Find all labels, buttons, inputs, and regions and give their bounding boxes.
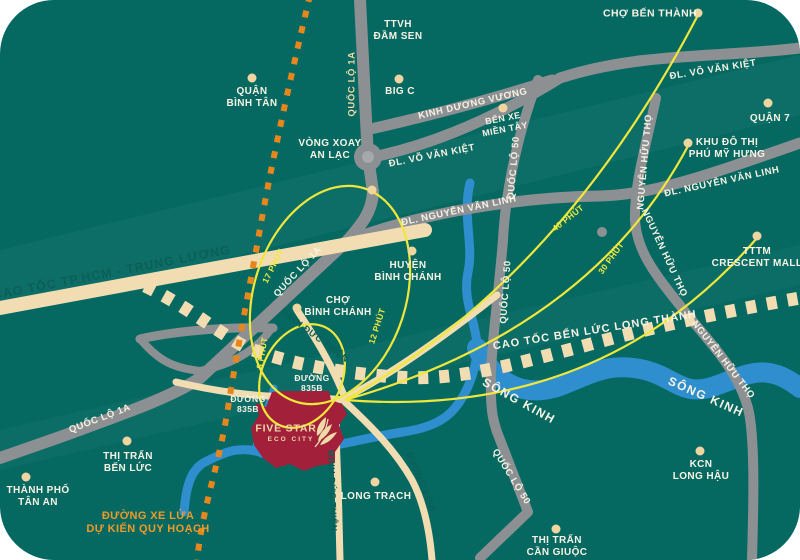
- marker-cho-ben-thanh: [694, 9, 703, 18]
- marker-thi-tran-ben-luc: [123, 437, 132, 446]
- marker-crescent-mall: [753, 232, 762, 241]
- marker-kcn-long-hau: [696, 447, 705, 456]
- marker-ben-xe-mien-tay: [499, 104, 508, 113]
- marker-ql1a-point: [368, 186, 377, 195]
- river-song-kinh: [477, 348, 800, 390]
- map-artwork: [0, 0, 800, 560]
- map-canvas: QUẬN BÌNH TÂN TTVH ĐẦM SEN BIG C CHỢ BẾN…: [0, 0, 800, 560]
- marker-long-trach: [371, 478, 380, 487]
- unlabeled-gray-dot: [597, 227, 607, 237]
- interchange-ramp-west: [142, 341, 200, 371]
- marker-quan-binh-tan: [248, 74, 257, 83]
- five-star-eco-city-location-map: QUẬN BÌNH TÂN TTVH ĐẦM SEN BIG C CHỢ BẾN…: [0, 0, 800, 560]
- marker-cho-binh-chanh: [293, 304, 302, 313]
- railway-dotted-line: [197, 0, 310, 560]
- marker-thi-tran-can-giuoc: [552, 525, 561, 534]
- marker-big-c: [395, 75, 404, 84]
- roundabout-center: [362, 151, 374, 163]
- marker-huyen-binh-chanh: [408, 247, 417, 256]
- marker-quan-7: [764, 99, 773, 108]
- marker-thanh-pho-tan-an: [22, 473, 31, 482]
- marker-phu-my-hung: [684, 139, 693, 148]
